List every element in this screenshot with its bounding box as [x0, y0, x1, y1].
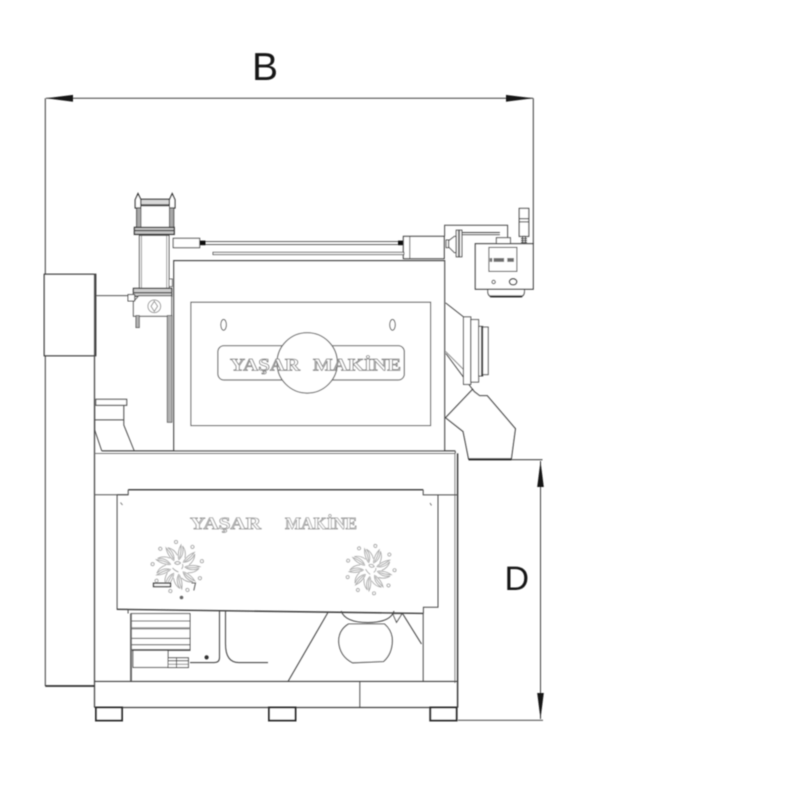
svg-text:D: D — [505, 560, 530, 598]
svg-text:B: B — [252, 46, 278, 89]
svg-text:MAKİNE: MAKİNE — [285, 514, 357, 533]
svg-text:YAŞAR: YAŞAR — [190, 514, 262, 533]
svg-text:MAKİNE: MAKİNE — [313, 355, 401, 375]
svg-text:YAŞAR: YAŞAR — [230, 355, 300, 375]
